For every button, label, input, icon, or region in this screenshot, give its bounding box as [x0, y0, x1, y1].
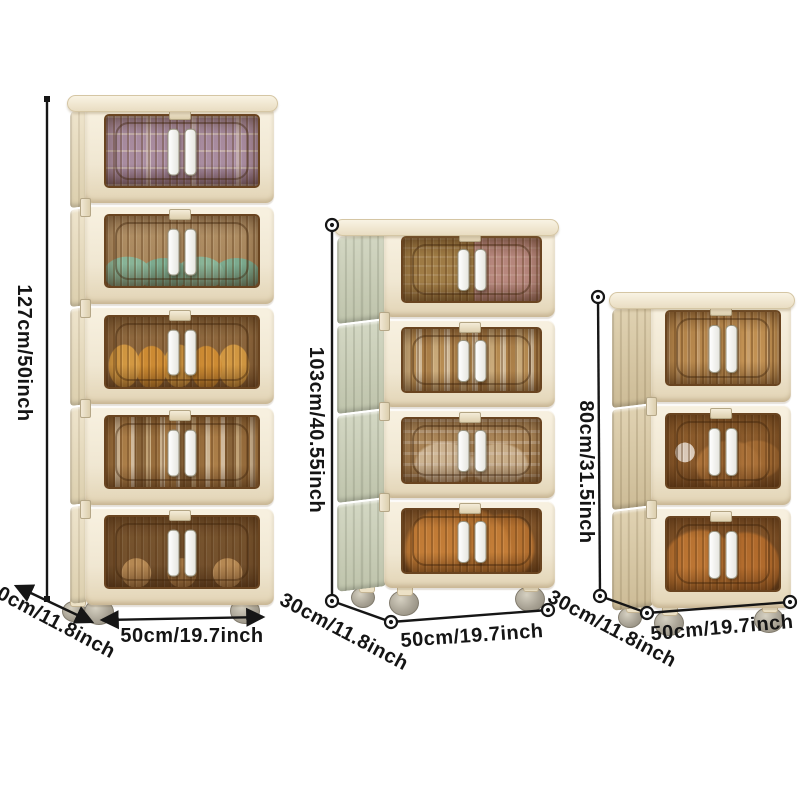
line-end-dot — [44, 96, 50, 102]
door-handle — [167, 530, 196, 575]
height-dimension-label-3tier: 80cm/31.5inch — [576, 400, 596, 543]
caster-wheel — [515, 586, 545, 612]
handle-bar — [457, 340, 469, 382]
storage-tier — [85, 206, 274, 303]
door-latch-icon — [169, 310, 191, 321]
cabinet-lid — [67, 95, 278, 112]
handle-bar — [457, 521, 469, 563]
handle-bar — [708, 531, 720, 579]
fold-clip-icon — [646, 500, 657, 519]
door-latch-icon — [169, 510, 191, 521]
door-handle — [167, 229, 196, 274]
handle-bar — [474, 340, 486, 382]
product-dimension-image: 127cm/50inch 30cm/11.8inch 50cm/19.7inch… — [0, 0, 800, 800]
storage-tier — [384, 410, 555, 498]
door-latch-icon — [459, 412, 481, 423]
handle-bar — [725, 325, 737, 373]
tier-door — [104, 515, 260, 589]
handle-bar — [457, 430, 469, 472]
cabinet-4-tier — [337, 219, 556, 590]
door-latch-icon — [169, 209, 191, 220]
storage-tier — [85, 508, 274, 605]
side-panel-segment — [337, 231, 386, 324]
tier-door — [401, 236, 542, 303]
cabinet-5-tier — [70, 95, 275, 608]
storage-tier — [85, 307, 274, 404]
tier-door — [665, 516, 781, 592]
side-panel-segment — [612, 304, 653, 408]
handle-bar — [167, 229, 179, 276]
fold-clip-icon — [80, 500, 91, 519]
width-dimension-label-4tier: 50cm/19.7inch — [400, 621, 544, 651]
handle-bar — [167, 430, 179, 477]
fold-clip-icon — [379, 493, 390, 512]
door-latch-icon — [710, 408, 732, 419]
handle-bar — [184, 329, 196, 376]
door-handle — [167, 329, 196, 374]
cabinet-side-panel — [612, 304, 653, 611]
height-dimension-line — [598, 297, 600, 596]
handle-bar — [184, 128, 196, 175]
door-handle — [708, 325, 737, 371]
fold-clip-icon — [80, 299, 91, 318]
handle-bar — [474, 249, 486, 291]
storage-tier — [651, 302, 791, 402]
door-handle — [167, 128, 196, 173]
handle-bar — [474, 430, 486, 472]
tier-door — [104, 214, 260, 288]
fold-clip-icon — [379, 312, 390, 331]
cabinet-3-tier — [612, 292, 792, 610]
height-dimension-label-4tier: 103cm/40.55inch — [306, 347, 326, 514]
tier-door — [401, 417, 542, 484]
tier-door — [665, 413, 781, 489]
line-end-dot — [44, 596, 50, 602]
handle-bar — [708, 428, 720, 476]
handle-bar — [167, 329, 179, 376]
storage-tier — [85, 407, 274, 504]
door-latch-icon — [459, 322, 481, 333]
door-handle — [457, 430, 486, 470]
tier-door — [104, 415, 260, 489]
caster-wheel — [389, 590, 419, 616]
door-handle — [457, 340, 486, 380]
tier-door — [104, 114, 260, 188]
caster-wheel — [351, 587, 375, 608]
tier-door — [401, 327, 542, 394]
handle-bar — [457, 249, 469, 291]
fold-clip-icon — [379, 402, 390, 421]
handle-bar — [184, 430, 196, 477]
cabinet-lid — [609, 292, 795, 309]
side-panel-segment — [612, 507, 653, 611]
storage-tier — [651, 405, 791, 505]
handle-bar — [184, 530, 196, 577]
door-handle — [708, 531, 737, 577]
door-latch-icon — [459, 503, 481, 514]
side-panel-segment — [337, 410, 386, 503]
cabinet-lid — [334, 219, 559, 236]
storage-tier — [384, 320, 555, 408]
door-handle — [457, 521, 486, 561]
fold-clip-icon — [80, 399, 91, 418]
tier-door — [104, 315, 260, 389]
door-latch-icon — [169, 410, 191, 421]
handle-bar — [725, 428, 737, 476]
handle-bar — [167, 530, 179, 577]
handle-bar — [474, 521, 486, 563]
door-handle — [457, 249, 486, 289]
side-panel-segment — [337, 499, 386, 592]
fold-clip-icon — [646, 397, 657, 416]
tier-door — [665, 310, 781, 386]
handle-bar — [167, 128, 179, 175]
fold-clip-icon — [80, 198, 91, 217]
door-latch-icon — [710, 511, 732, 522]
storage-tier — [384, 229, 555, 317]
handle-bar — [725, 531, 737, 579]
handle-bar — [708, 325, 720, 373]
storage-tier — [651, 508, 791, 608]
height-dimension-label-5tier: 127cm/50inch — [14, 284, 34, 421]
tier-door — [401, 508, 542, 575]
side-panel-segment — [337, 320, 386, 413]
side-panel-segment — [612, 405, 653, 509]
storage-tier — [384, 501, 555, 589]
width-dimension-label-5tier: 50cm/19.7inch — [120, 626, 263, 646]
storage-tier — [85, 106, 274, 203]
door-handle — [167, 430, 196, 475]
handle-bar — [184, 229, 196, 276]
door-handle — [708, 428, 737, 474]
